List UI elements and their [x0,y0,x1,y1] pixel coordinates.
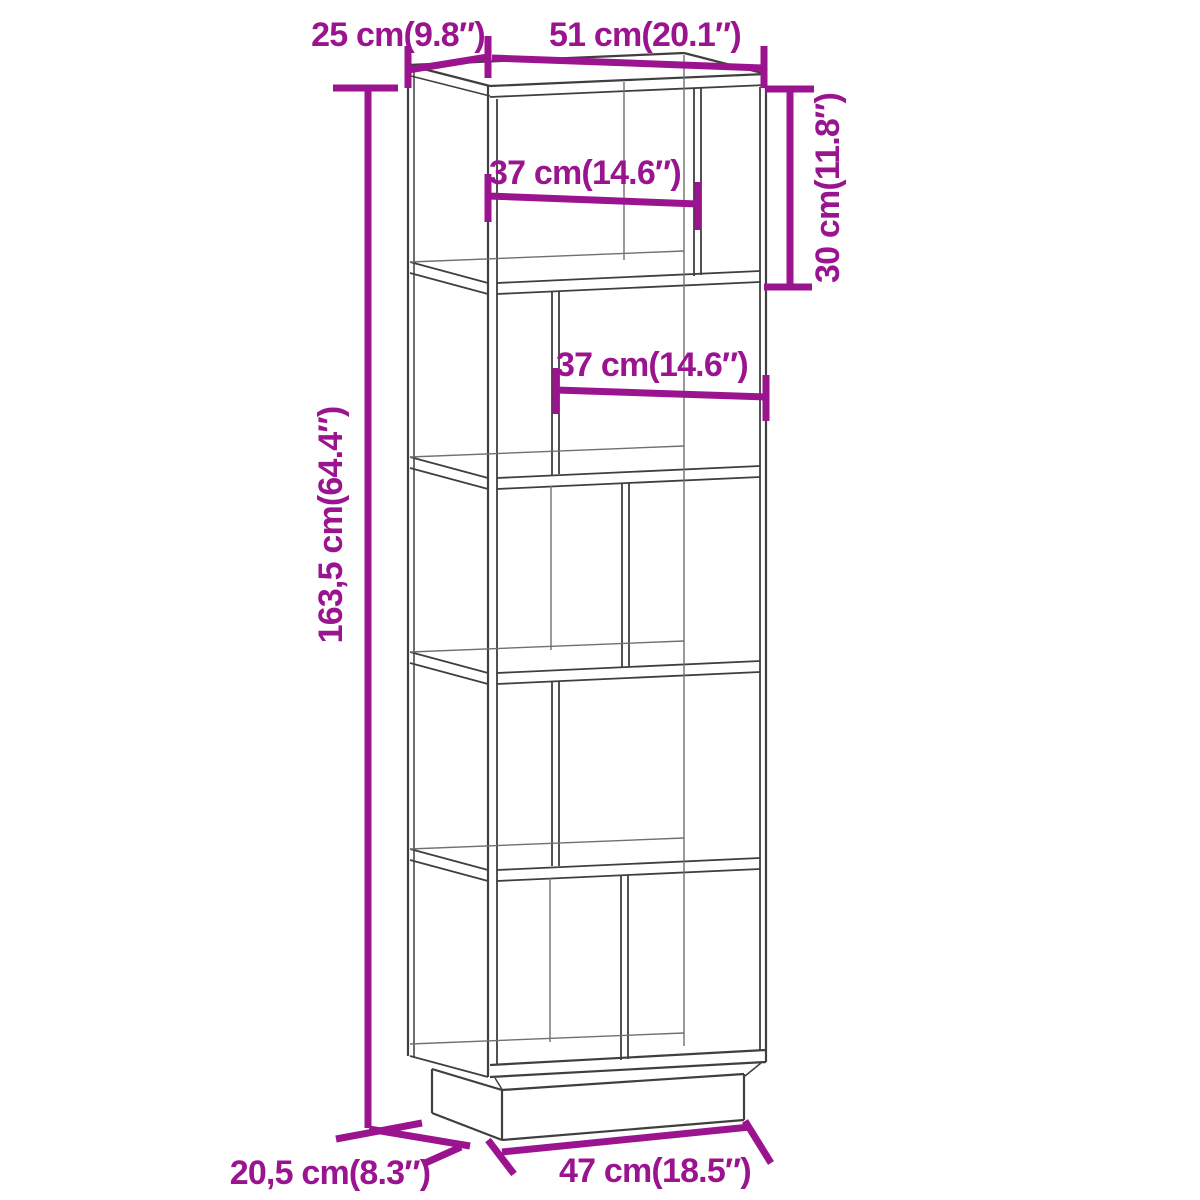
dim-shelf2-inner-width: 37 cm(14.6″) [556,346,766,421]
dim-section-height: 30 cm(11.8″) [764,89,847,287]
product-dimension-image: 25 cm(9.8″) 51 cm(20.1″) 30 cm(11.8″) [0,0,1200,1200]
dim-shelf1-inner-width: 37 cm(14.6″) [488,154,698,230]
dim-total-height-label: 163,5 cm(64.4″) [312,407,350,644]
dim-tick [488,1140,514,1174]
dim-shelf2-inner-width-label: 37 cm(14.6″) [556,346,748,384]
dim-line [369,1129,470,1146]
dimension-diagram-svg: 25 cm(9.8″) 51 cm(20.1″) 30 cm(11.8″) [0,0,1200,1200]
dim-line [556,390,766,397]
dim-top-depth: 25 cm(9.8″) [311,16,488,88]
dim-shelf1-inner-width-label: 37 cm(14.6″) [489,154,681,192]
dimension-annotations: 25 cm(9.8″) 51 cm(20.1″) 30 cm(11.8″) [230,16,847,1192]
cabinet-dividers [552,88,701,1060]
dim-line [492,58,764,68]
dim-base-width: 47 cm(18.5″) [488,1121,771,1190]
dim-base-width-label: 47 cm(18.5″) [559,1152,751,1190]
cabinet-front-frame [488,74,766,1077]
dim-top-width: 51 cm(20.1″) [492,16,764,88]
dim-top-width-label: 51 cm(20.1″) [549,16,741,54]
dim-base-depth-label: 20,5 cm(8.3″) [230,1154,431,1192]
dim-section-height-label: 30 cm(11.8″) [809,93,847,283]
cabinet-line-art [408,53,766,1140]
dim-top-depth-label: 25 cm(9.8″) [311,16,485,54]
dim-line [488,196,698,204]
dim-total-height: 163,5 cm(64.4″) [312,88,422,1139]
cabinet-left-side [408,65,488,1077]
